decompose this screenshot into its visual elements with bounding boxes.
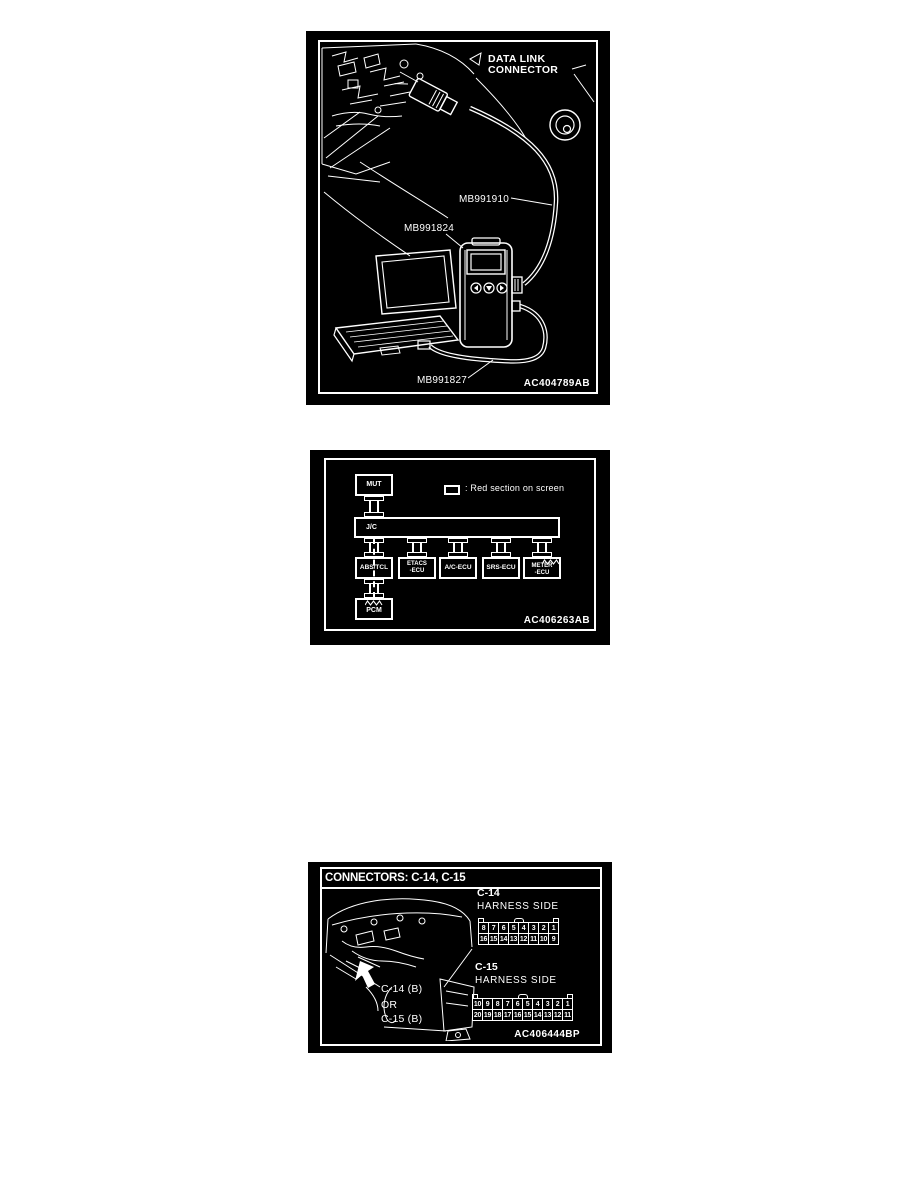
mb991910-label: MB991910 [459, 194, 509, 205]
c15-pin-diagram: 10987654321 20191817161514131211 [472, 994, 573, 1021]
block-srs-ecu: SRS-ECU [482, 557, 520, 579]
c14-name: C-14 [477, 887, 500, 899]
callout-or: OR [381, 999, 397, 1011]
tab-icon [478, 918, 484, 922]
wire-pair [496, 543, 506, 552]
callout-c15b: C-15 (B) [381, 1013, 422, 1025]
figure3-title: CONNECTORS: C-14, C-15 [322, 869, 600, 889]
figure-border: MUT J/C ABS/TCL ETACS -ECU A/C-ECU SRS-E… [324, 458, 596, 631]
diagnosis-dashed-line [373, 538, 375, 598]
tab-icon [567, 994, 573, 998]
bus-link-jc-srs [490, 538, 512, 557]
c15-name: C-15 [475, 961, 498, 973]
bus-link-jc-meter [531, 538, 553, 557]
wire-pair [453, 543, 463, 552]
wire-pair [537, 543, 547, 552]
figure-border: CONNECTORS: C-14, C-15 [320, 867, 602, 1046]
figure2-part-code: AC406263AB [524, 615, 590, 626]
figure-border: DATA LINK CONNECTOR MB991910 MB991824 MB… [318, 40, 598, 394]
block-mut: MUT [355, 474, 393, 496]
location-arrow-icon [355, 961, 375, 988]
connector-tabs [478, 918, 559, 922]
bus-link-mut-jc [363, 496, 385, 517]
figure1-part-code: AC404789AB [524, 378, 590, 389]
legend-swatch [444, 485, 460, 495]
figure-connectors: CONNECTORS: C-14, C-15 [308, 862, 612, 1053]
resistor-squiggle-icon [365, 600, 383, 606]
latch-icon [514, 918, 524, 922]
mb991824-label: MB991824 [404, 223, 454, 234]
bus-link-jc-etacs [406, 538, 428, 557]
vci-device-drawing [460, 238, 522, 347]
legend-text: : Red section on screen [465, 483, 564, 493]
c15-pin-row-2: 20191817161514131211 [472, 1009, 573, 1021]
mb991827-label: MB991827 [417, 375, 467, 386]
ignition-keyhole-drawing [550, 110, 580, 140]
tab-icon [553, 918, 559, 922]
c14-harness-side-label: HARNESS SIDE [477, 901, 559, 912]
scan-tool-illustration: DATA LINK CONNECTOR MB991910 MB991824 MB… [320, 42, 596, 390]
block-jc: J/C [354, 517, 560, 538]
c14-pin-row-2: 161514131211109 [478, 933, 559, 945]
block-etacs-ecu: ETACS -ECU [398, 557, 436, 579]
block-ac-ecu: A/C-ECU [439, 557, 477, 579]
connector-tabs [472, 994, 573, 998]
figure3-part-code: AC406444BP [514, 1029, 580, 1040]
c15-harness-side-label: HARNESS SIDE [475, 975, 557, 986]
resistor-squiggle-icon [542, 559, 560, 565]
tab-icon [472, 994, 478, 998]
pin-cell: 9 [548, 933, 559, 945]
c14-pin-diagram: 87654321 161514131211109 [478, 918, 559, 945]
pin-cell: 11 [562, 1009, 573, 1021]
laptop-drawing [334, 250, 458, 361]
cable-mb991827-drawing [430, 306, 545, 361]
wire-pair [369, 501, 379, 512]
figure-block-diagram: MUT J/C ABS/TCL ETACS -ECU A/C-ECU SRS-E… [310, 450, 610, 645]
wire-pair [412, 543, 422, 552]
figure-scan-tool-hookup: DATA LINK CONNECTOR MB991910 MB991824 MB… [306, 31, 610, 405]
leader-lines [446, 53, 594, 378]
callout-c14b: C-14 (B) [381, 983, 422, 995]
bus-link-jc-ac [447, 538, 469, 557]
latch-icon [518, 994, 528, 998]
data-link-connector-label-line2: CONNECTOR [488, 64, 558, 76]
service-manual-page: { "colors": { "page_bg": "#ffffff", "pan… [0, 0, 918, 1188]
